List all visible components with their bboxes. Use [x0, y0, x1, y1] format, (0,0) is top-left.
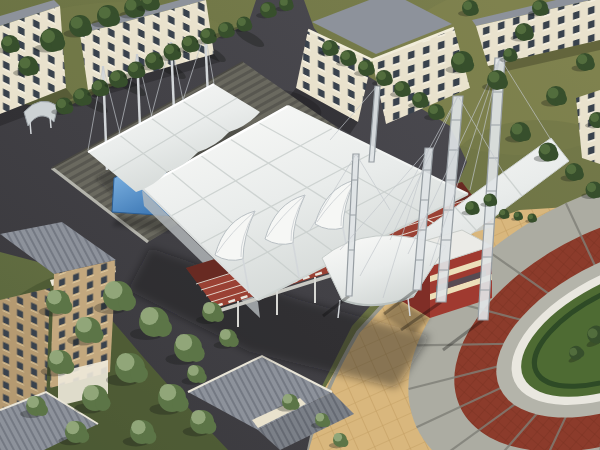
- architectural-render: [0, 0, 600, 450]
